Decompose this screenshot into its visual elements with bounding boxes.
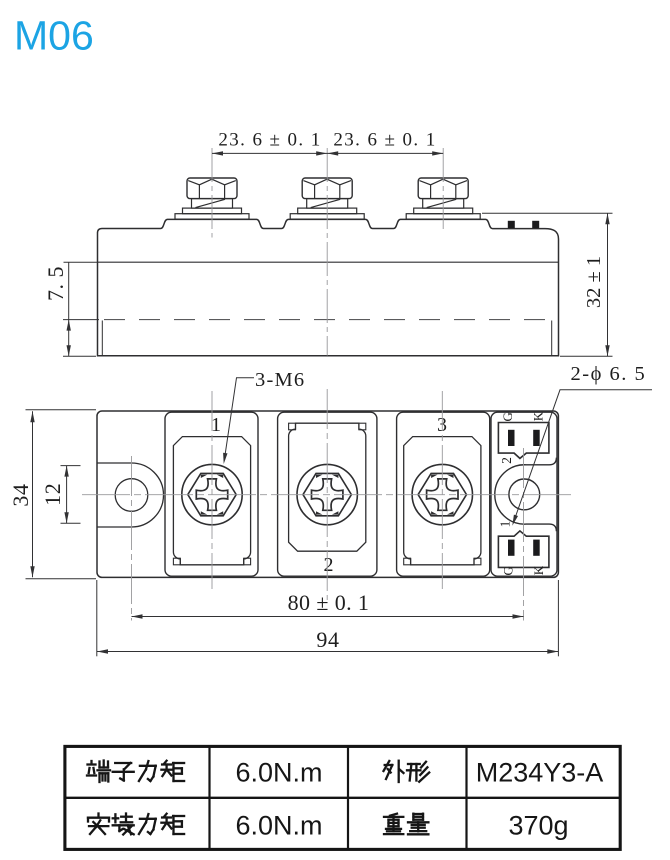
svg-text:K: K — [531, 565, 546, 575]
svg-text:6.0N.m: 6.0N.m — [235, 758, 322, 788]
svg-text:370g: 370g — [508, 811, 568, 841]
svg-text:12: 12 — [40, 483, 65, 506]
svg-text:94: 94 — [316, 627, 339, 652]
svg-text:32 ± 1: 32 ± 1 — [583, 256, 605, 308]
svg-text:6.0N.m: 6.0N.m — [235, 811, 322, 841]
svg-text:M234Y3-A: M234Y3-A — [476, 758, 604, 788]
svg-text:1: 1 — [211, 414, 221, 436]
svg-text:3-M6: 3-M6 — [255, 369, 305, 391]
svg-text:M06: M06 — [14, 13, 94, 59]
svg-text:K: K — [531, 411, 546, 421]
svg-text:1: 1 — [498, 521, 513, 528]
svg-text:2: 2 — [499, 457, 514, 464]
svg-text:23. 6 ± 0. 1: 23. 6 ± 0. 1 — [218, 130, 321, 151]
svg-text:2-ϕ 6. 5: 2-ϕ 6. 5 — [571, 363, 647, 385]
svg-text:7. 5: 7. 5 — [43, 266, 68, 301]
svg-text:23. 6 ± 0. 1: 23. 6 ± 0. 1 — [333, 130, 436, 151]
svg-text:G: G — [500, 412, 515, 421]
svg-text:G: G — [501, 566, 516, 575]
svg-text:34: 34 — [8, 483, 33, 506]
svg-text:80 ± 0. 1: 80 ± 0. 1 — [288, 590, 370, 615]
svg-text:2: 2 — [324, 554, 334, 576]
